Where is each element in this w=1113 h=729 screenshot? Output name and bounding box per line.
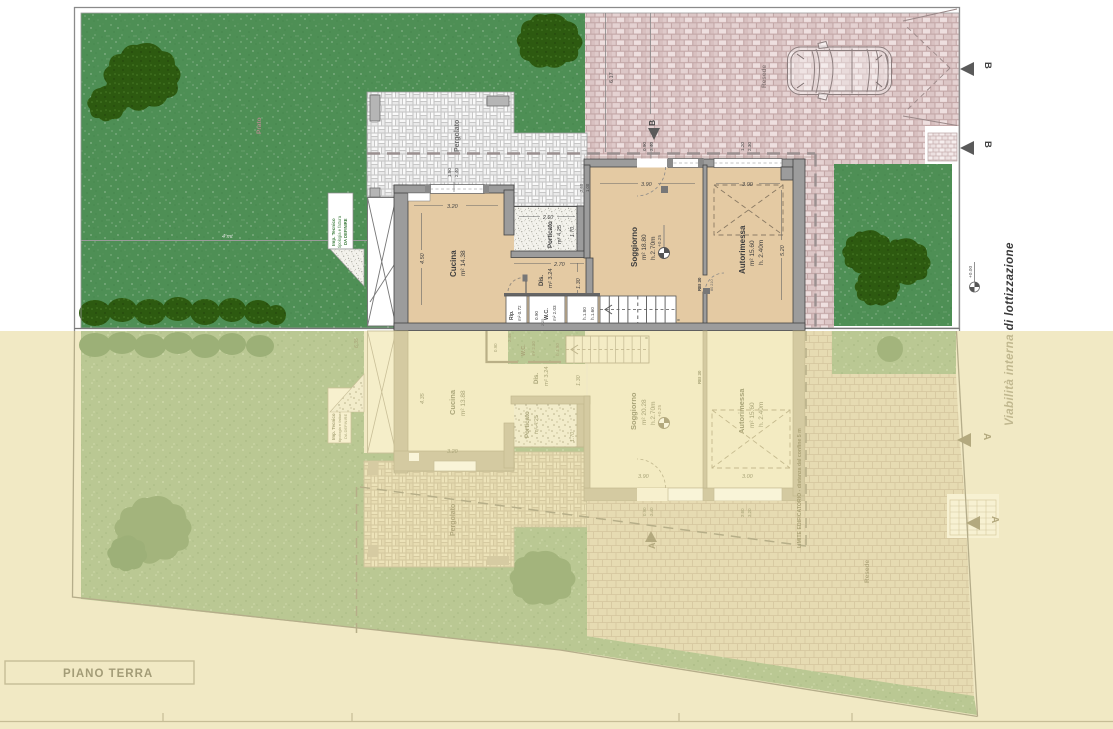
svg-text:2.60: 2.60 (542, 215, 553, 221)
svg-text:m² 15.60: m² 15.60 (749, 402, 756, 428)
svg-text:1.70: 1.70 (570, 432, 576, 442)
svg-text:h.1.60: h.1.60 (590, 307, 595, 320)
svg-text:2.30: 2.30 (747, 142, 752, 151)
svg-text:4 mt: 4 mt (222, 234, 233, 240)
svg-text:3.20: 3.20 (447, 204, 459, 210)
svg-text:W.C.: W.C. (544, 308, 550, 320)
svg-text:3.20: 3.20 (447, 449, 459, 455)
svg-text:Autorimessa: Autorimessa (737, 388, 746, 434)
svg-text:A: A (981, 433, 992, 440)
svg-text:6.35: 6.35 (354, 338, 360, 348)
svg-text:m² 18.80: m² 18.80 (641, 234, 648, 260)
svg-text:2.45: 2.45 (507, 333, 512, 342)
svg-text:1.70: 1.70 (570, 227, 576, 237)
svg-text:=: = (677, 318, 680, 324)
svg-text:0.90: 0.90 (642, 507, 647, 516)
svg-text:h.2.70m: h.2.70m (650, 237, 657, 261)
svg-text:6.17: 6.17 (609, 72, 615, 83)
svg-text:80 210: 80 210 (710, 279, 714, 291)
svg-text:Cucina: Cucina (448, 389, 457, 415)
svg-text:Autorimessa: Autorimessa (738, 225, 747, 274)
svg-text:tipologia e fattura: tipologia e fattura (337, 215, 342, 248)
svg-text:0.90: 0.90 (493, 343, 498, 352)
svg-text:m² 3.24: m² 3.24 (544, 366, 550, 386)
svg-text:=: = (645, 336, 648, 342)
svg-text:Cucina: Cucina (449, 250, 458, 277)
svg-text:Resede: Resede (864, 559, 871, 583)
svg-text:Soggiorno: Soggiorno (630, 227, 639, 267)
svg-text:m² 4.25: m² 4.25 (557, 225, 563, 244)
svg-text:1.00: 1.00 (585, 183, 590, 192)
svg-text:2.60: 2.60 (740, 508, 745, 517)
svg-text:m² 4.25: m² 4.25 (534, 415, 540, 434)
svg-text:2.40: 2.40 (454, 168, 459, 177)
svg-text:1.30: 1.30 (576, 374, 582, 386)
svg-text:Porticato: Porticato (524, 411, 531, 438)
svg-text:Imp. Tecnico: Imp. Tecnico (331, 218, 336, 246)
svg-text:DA DEFINIRE: DA DEFINIRE (343, 218, 348, 245)
svg-text:3.20: 3.20 (747, 508, 752, 517)
svg-text:Porticato: Porticato (547, 221, 554, 248)
svg-text:3.90: 3.90 (638, 474, 650, 480)
svg-text:B: B (982, 141, 993, 148)
svg-text:DA DEFINIRE: DA DEFINIRE (343, 414, 348, 439)
svg-text:REI 30: REI 30 (697, 370, 702, 384)
svg-text:+0.25: +0.25 (657, 405, 663, 417)
svg-text:B: B (982, 62, 993, 69)
svg-text:PIANO TERRA: PIANO TERRA (63, 668, 153, 680)
svg-text:2.70: 2.70 (553, 262, 566, 268)
svg-text:Rip.: Rip. (509, 310, 515, 320)
svg-text:m² 3.24: m² 3.24 (548, 268, 554, 288)
svg-text:4.35: 4.35 (420, 392, 426, 404)
svg-text:0.90: 0.90 (642, 142, 647, 151)
svg-text:LIMITE EDIFICATORIO - distanza: LIMITE EDIFICATORIO - distanza dal confi… (797, 428, 803, 548)
svg-text:m² 15.60: m² 15.60 (749, 240, 756, 266)
svg-text:1.50: 1.50 (447, 168, 452, 177)
svg-text:B: B (647, 120, 657, 126)
svg-text:+0.25: +0.25 (657, 235, 663, 247)
svg-text:Pergolato: Pergolato (454, 120, 461, 152)
svg-text:m² 20.28: m² 20.28 (641, 399, 648, 425)
svg-text:Pergolato: Pergolato (450, 504, 457, 536)
svg-text:W.C.: W.C. (521, 344, 527, 356)
svg-text:m² 0.72: m² 0.72 (517, 305, 522, 321)
svg-text:h. 2.40m: h. 2.40m (758, 402, 765, 427)
svg-text:Dis.: Dis. (534, 373, 540, 384)
svg-text:2.40: 2.40 (649, 142, 654, 151)
svg-text:tipologia e fattura: tipologia e fattura (337, 411, 342, 442)
svg-text:Prato: Prato (256, 117, 263, 134)
svg-text:REI 30: REI 30 (697, 277, 702, 291)
svg-text:1.30: 1.30 (576, 277, 582, 289)
svg-text:2.25: 2.25 (541, 319, 545, 326)
svg-text:1.20: 1.20 (740, 142, 745, 151)
svg-text:2.60: 2.60 (579, 183, 584, 192)
svg-text:A: A (989, 516, 1000, 523)
svg-text:0.90: 0.90 (534, 311, 539, 320)
svg-text:m² 2.03: m² 2.03 (552, 305, 557, 321)
svg-text:m² 2.20: m² 2.20 (531, 341, 536, 356)
svg-text:Resede: Resede (761, 64, 768, 88)
svg-text:3.00: 3.00 (742, 474, 754, 480)
svg-text:+0.00: +0.00 (968, 266, 974, 278)
svg-text:m² 14.38: m² 14.38 (460, 250, 467, 276)
svg-text:3.90: 3.90 (641, 182, 653, 188)
svg-text:m² 13.88: m² 13.88 (460, 390, 467, 416)
svg-text:5.20: 5.20 (780, 244, 786, 256)
svg-text:h. 2.40m: h. 2.40m (758, 240, 765, 265)
svg-text:4.50: 4.50 (420, 252, 426, 264)
svg-text:Soggiorno: Soggiorno (629, 392, 638, 430)
svg-text:h.2.70m: h.2.70m (650, 402, 657, 426)
svg-text:h.1.80: h.1.80 (582, 307, 587, 320)
svg-text:Dis.: Dis. (539, 275, 545, 286)
svg-text:2.40: 2.40 (649, 507, 654, 516)
svg-text:Imp. Tecnico: Imp. Tecnico (331, 413, 336, 440)
svg-text:3.00: 3.00 (742, 182, 754, 188)
svg-text:A: A (647, 542, 657, 549)
svg-text:h.1.80: h.1.80 (555, 343, 560, 356)
